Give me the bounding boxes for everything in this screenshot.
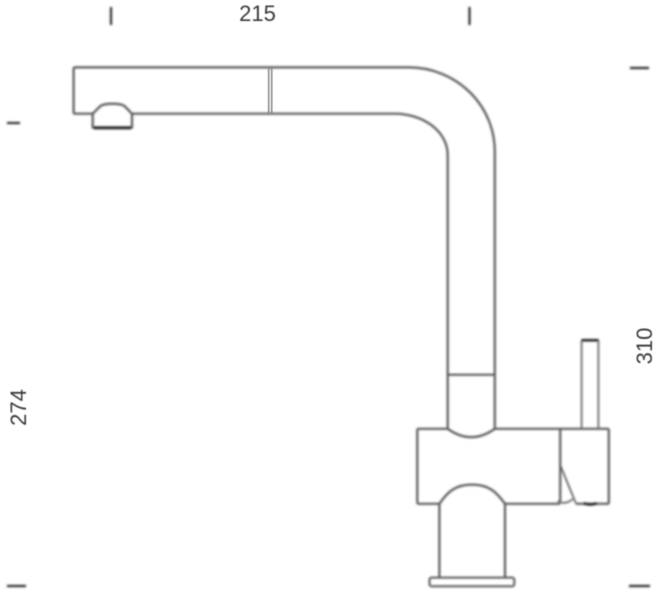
svg-text:215: 215	[239, 1, 276, 26]
svg-text:310: 310	[632, 328, 657, 365]
svg-text:274: 274	[6, 389, 31, 426]
